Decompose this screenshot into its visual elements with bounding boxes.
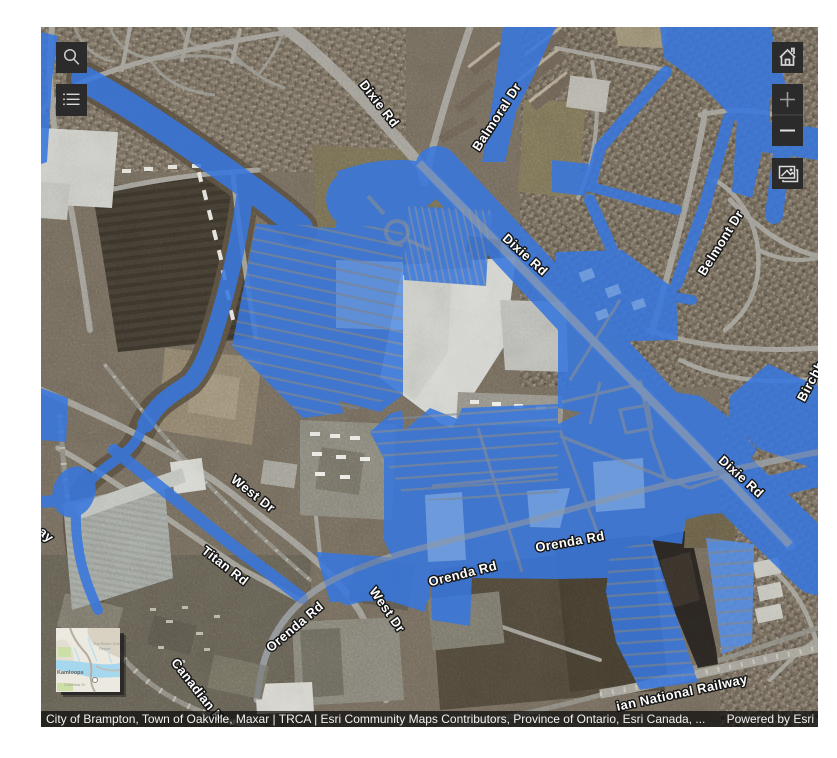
svg-text:Kamloops: Kamloops [57,670,84,676]
svg-text:City of Brampton, Town of Oakv: City of Brampton, Town of Oakville, Maxa… [46,712,705,726]
svg-text:Resort: Resort [99,647,111,651]
svg-text:Columbia St: Columbia St [64,683,86,687]
svg-text:Sun Rivers Golf: Sun Rivers Golf [93,642,121,646]
svg-text:Powered by Esri: Powered by Esri [727,712,814,726]
